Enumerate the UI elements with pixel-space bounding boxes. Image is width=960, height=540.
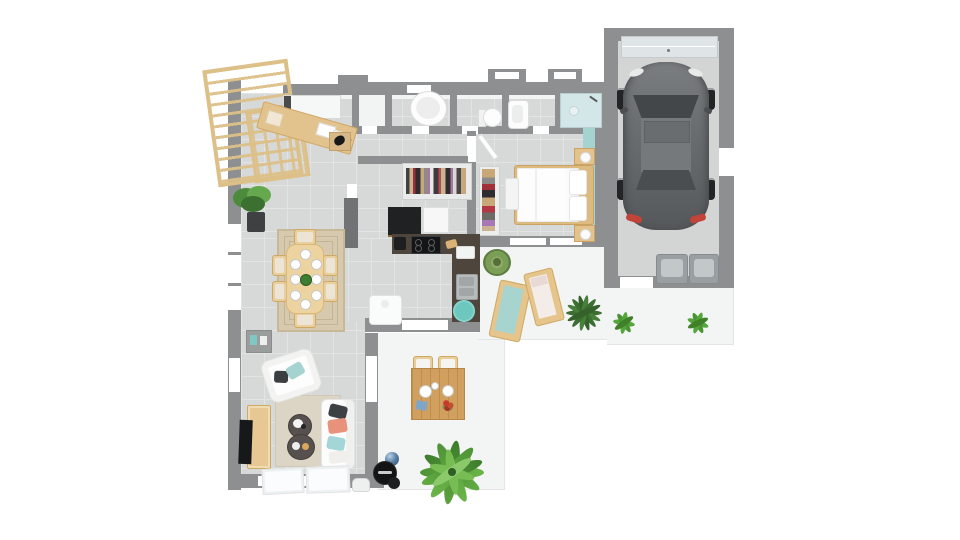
dining-chair <box>294 229 316 245</box>
pillow <box>569 170 587 195</box>
shelf-contents <box>482 169 495 231</box>
table-item <box>301 424 306 429</box>
pillow-teal <box>326 436 346 452</box>
pillow <box>569 196 587 221</box>
pillow-dark <box>328 403 349 420</box>
window <box>554 72 576 79</box>
dining-table <box>286 244 324 314</box>
white-appliance <box>369 295 402 325</box>
garage-door-seam <box>622 46 715 47</box>
coffee-machine <box>394 237 406 250</box>
dining-chair <box>272 255 287 276</box>
palm-plant <box>415 436 489 508</box>
door-gap <box>362 126 377 134</box>
burner <box>415 245 422 252</box>
car-roof <box>641 118 691 172</box>
double-sink <box>456 274 478 300</box>
wall-garage-left <box>604 28 618 288</box>
dining-chair <box>323 281 338 302</box>
bin-lid <box>661 259 683 277</box>
wall-divider <box>385 84 392 134</box>
nightstand-right <box>574 225 595 242</box>
plant-pot <box>247 212 265 232</box>
sideboard-item <box>260 336 267 345</box>
open-wardrobe-clothes <box>402 163 472 200</box>
gray-sideboard <box>246 330 272 353</box>
agave-core <box>493 258 501 266</box>
bathtub-basin <box>512 105 523 123</box>
dining-chair <box>272 281 287 302</box>
car-windshield <box>633 95 699 120</box>
tv <box>238 420 253 464</box>
potted-plant <box>233 186 273 232</box>
lamp <box>580 229 591 240</box>
floorplan-render <box>0 0 960 540</box>
plate <box>442 385 454 397</box>
toilet <box>478 108 501 126</box>
place-setting <box>300 249 311 260</box>
appliance-knob <box>381 300 389 308</box>
outdoor-table <box>411 368 465 420</box>
toilet-bowl <box>483 108 502 127</box>
bedroom-door-gap <box>467 136 476 162</box>
place-setting <box>300 299 311 310</box>
wall-top-entry <box>283 84 359 95</box>
place-setting <box>290 290 301 301</box>
sofa <box>321 399 355 469</box>
bbq-lid-handle <box>378 471 392 474</box>
car <box>623 62 709 230</box>
foot-bench <box>505 178 519 210</box>
door-gap <box>533 126 549 134</box>
duvet-fold <box>535 168 537 222</box>
place-setting <box>311 274 322 285</box>
walk-in-shower <box>560 93 602 128</box>
shoe-shelf <box>479 166 500 236</box>
place-setting <box>290 259 301 270</box>
pillow-white <box>328 450 347 464</box>
console-box <box>265 110 284 128</box>
flower-bouquet <box>442 399 454 411</box>
car-rear-window <box>636 170 696 190</box>
garage-side-door <box>719 148 734 176</box>
lamp <box>580 152 591 163</box>
glass-door <box>366 356 377 402</box>
lounger-fabric <box>495 285 524 334</box>
plant-foliage <box>241 196 265 212</box>
dining-chair <box>294 312 316 328</box>
centerpiece-bowl <box>300 274 312 286</box>
sink-basin <box>459 288 474 296</box>
sink-basin <box>459 277 474 286</box>
glass-door <box>402 320 448 330</box>
place-setting <box>311 259 322 270</box>
window <box>229 358 240 392</box>
storage-bin <box>656 254 688 284</box>
wall-kitchen-stub <box>344 198 358 248</box>
spiky-plant <box>564 292 604 334</box>
window <box>495 72 519 79</box>
white-cabinet <box>423 207 449 233</box>
place-setting <box>311 290 322 301</box>
watering-can <box>352 478 370 492</box>
wall-pillar <box>347 184 357 198</box>
small-plant <box>686 311 710 335</box>
small-plant <box>612 311 636 335</box>
dining-chair <box>323 255 338 276</box>
storage-bin <box>689 254 719 284</box>
window <box>228 255 241 283</box>
bbq-base <box>388 477 400 489</box>
floor-glass-door <box>306 465 351 494</box>
cup <box>431 382 439 390</box>
window <box>510 238 546 245</box>
dish-rack <box>456 246 475 259</box>
wall-divider <box>450 84 457 134</box>
window <box>228 286 241 310</box>
floor-glass-door <box>261 467 304 495</box>
cat <box>333 134 347 147</box>
sideboard-item <box>250 335 257 345</box>
shower-arm <box>589 96 598 103</box>
double-bed <box>514 165 594 225</box>
burner <box>428 245 435 252</box>
garage-door <box>621 36 718 58</box>
bowl <box>302 443 309 450</box>
cooktop <box>411 236 441 254</box>
hanging-clothes <box>406 168 466 194</box>
plate <box>292 442 300 450</box>
storage-crate <box>329 132 351 151</box>
car-sunroof <box>644 121 690 143</box>
bathtub-basin <box>414 95 442 122</box>
door-gap <box>412 126 429 134</box>
garage-door-handle <box>667 49 670 52</box>
pillow-coral <box>327 418 348 435</box>
bathtub <box>508 100 529 129</box>
nightstand-left <box>574 148 595 165</box>
bin-lid <box>694 259 714 277</box>
garage-back-door <box>620 277 653 288</box>
palm-center <box>448 468 456 476</box>
tall-black-cabinet <box>388 207 421 237</box>
agave-plant <box>483 249 511 276</box>
plate <box>419 385 432 398</box>
coffee-table-large <box>287 434 315 460</box>
shower-drain <box>569 106 579 116</box>
round-teal-rug <box>453 300 475 322</box>
napkin-blue <box>415 400 427 411</box>
